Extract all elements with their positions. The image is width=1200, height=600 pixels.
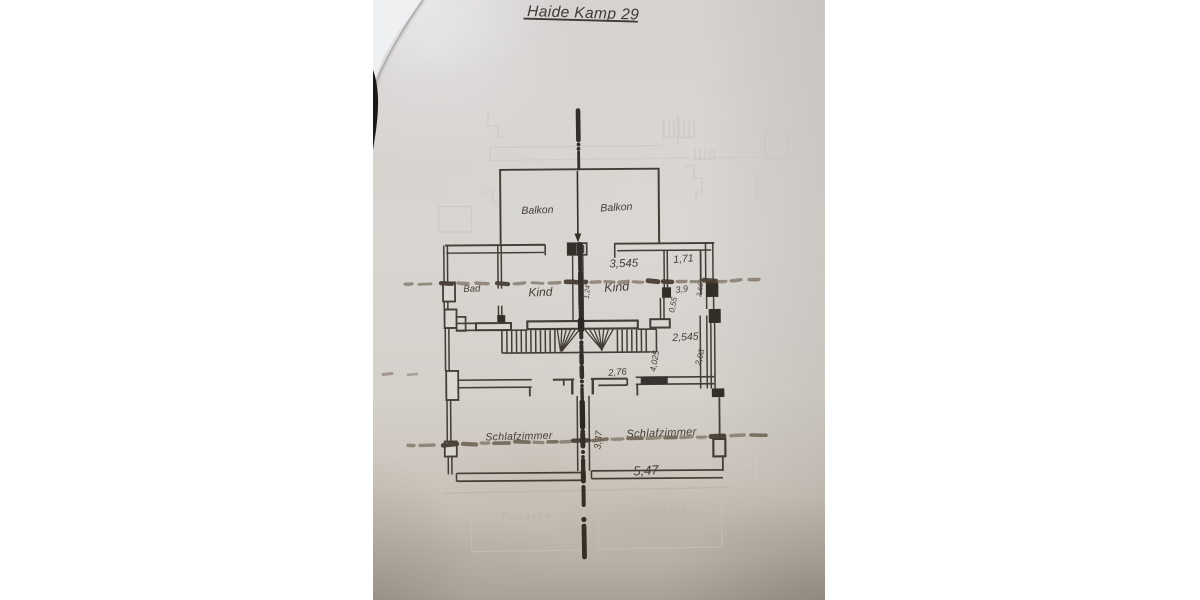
svg-text:1,71: 1,71: [673, 252, 694, 266]
svg-text:0,55: 0,55: [667, 296, 679, 314]
svg-text:4,025: 4,025: [648, 349, 662, 372]
svg-text:2,76: 2,76: [607, 366, 628, 379]
svg-text:Terrasse: Terrasse: [638, 505, 689, 517]
svg-text:Balkon: Balkon: [600, 201, 633, 215]
svg-text:Terrasse: Terrasse: [501, 511, 552, 523]
svg-text:Balkon: Balkon: [521, 204, 554, 217]
svg-text:Kind: Kind: [528, 285, 553, 300]
svg-text:2,06: 2,06: [693, 348, 707, 368]
svg-text:5,47: 5,47: [633, 462, 660, 478]
svg-text:2,545: 2,545: [671, 331, 699, 344]
svg-text:3,9: 3,9: [675, 283, 689, 295]
svg-text:1,24: 1,24: [584, 285, 592, 299]
svg-text:3,545: 3,545: [609, 257, 639, 270]
